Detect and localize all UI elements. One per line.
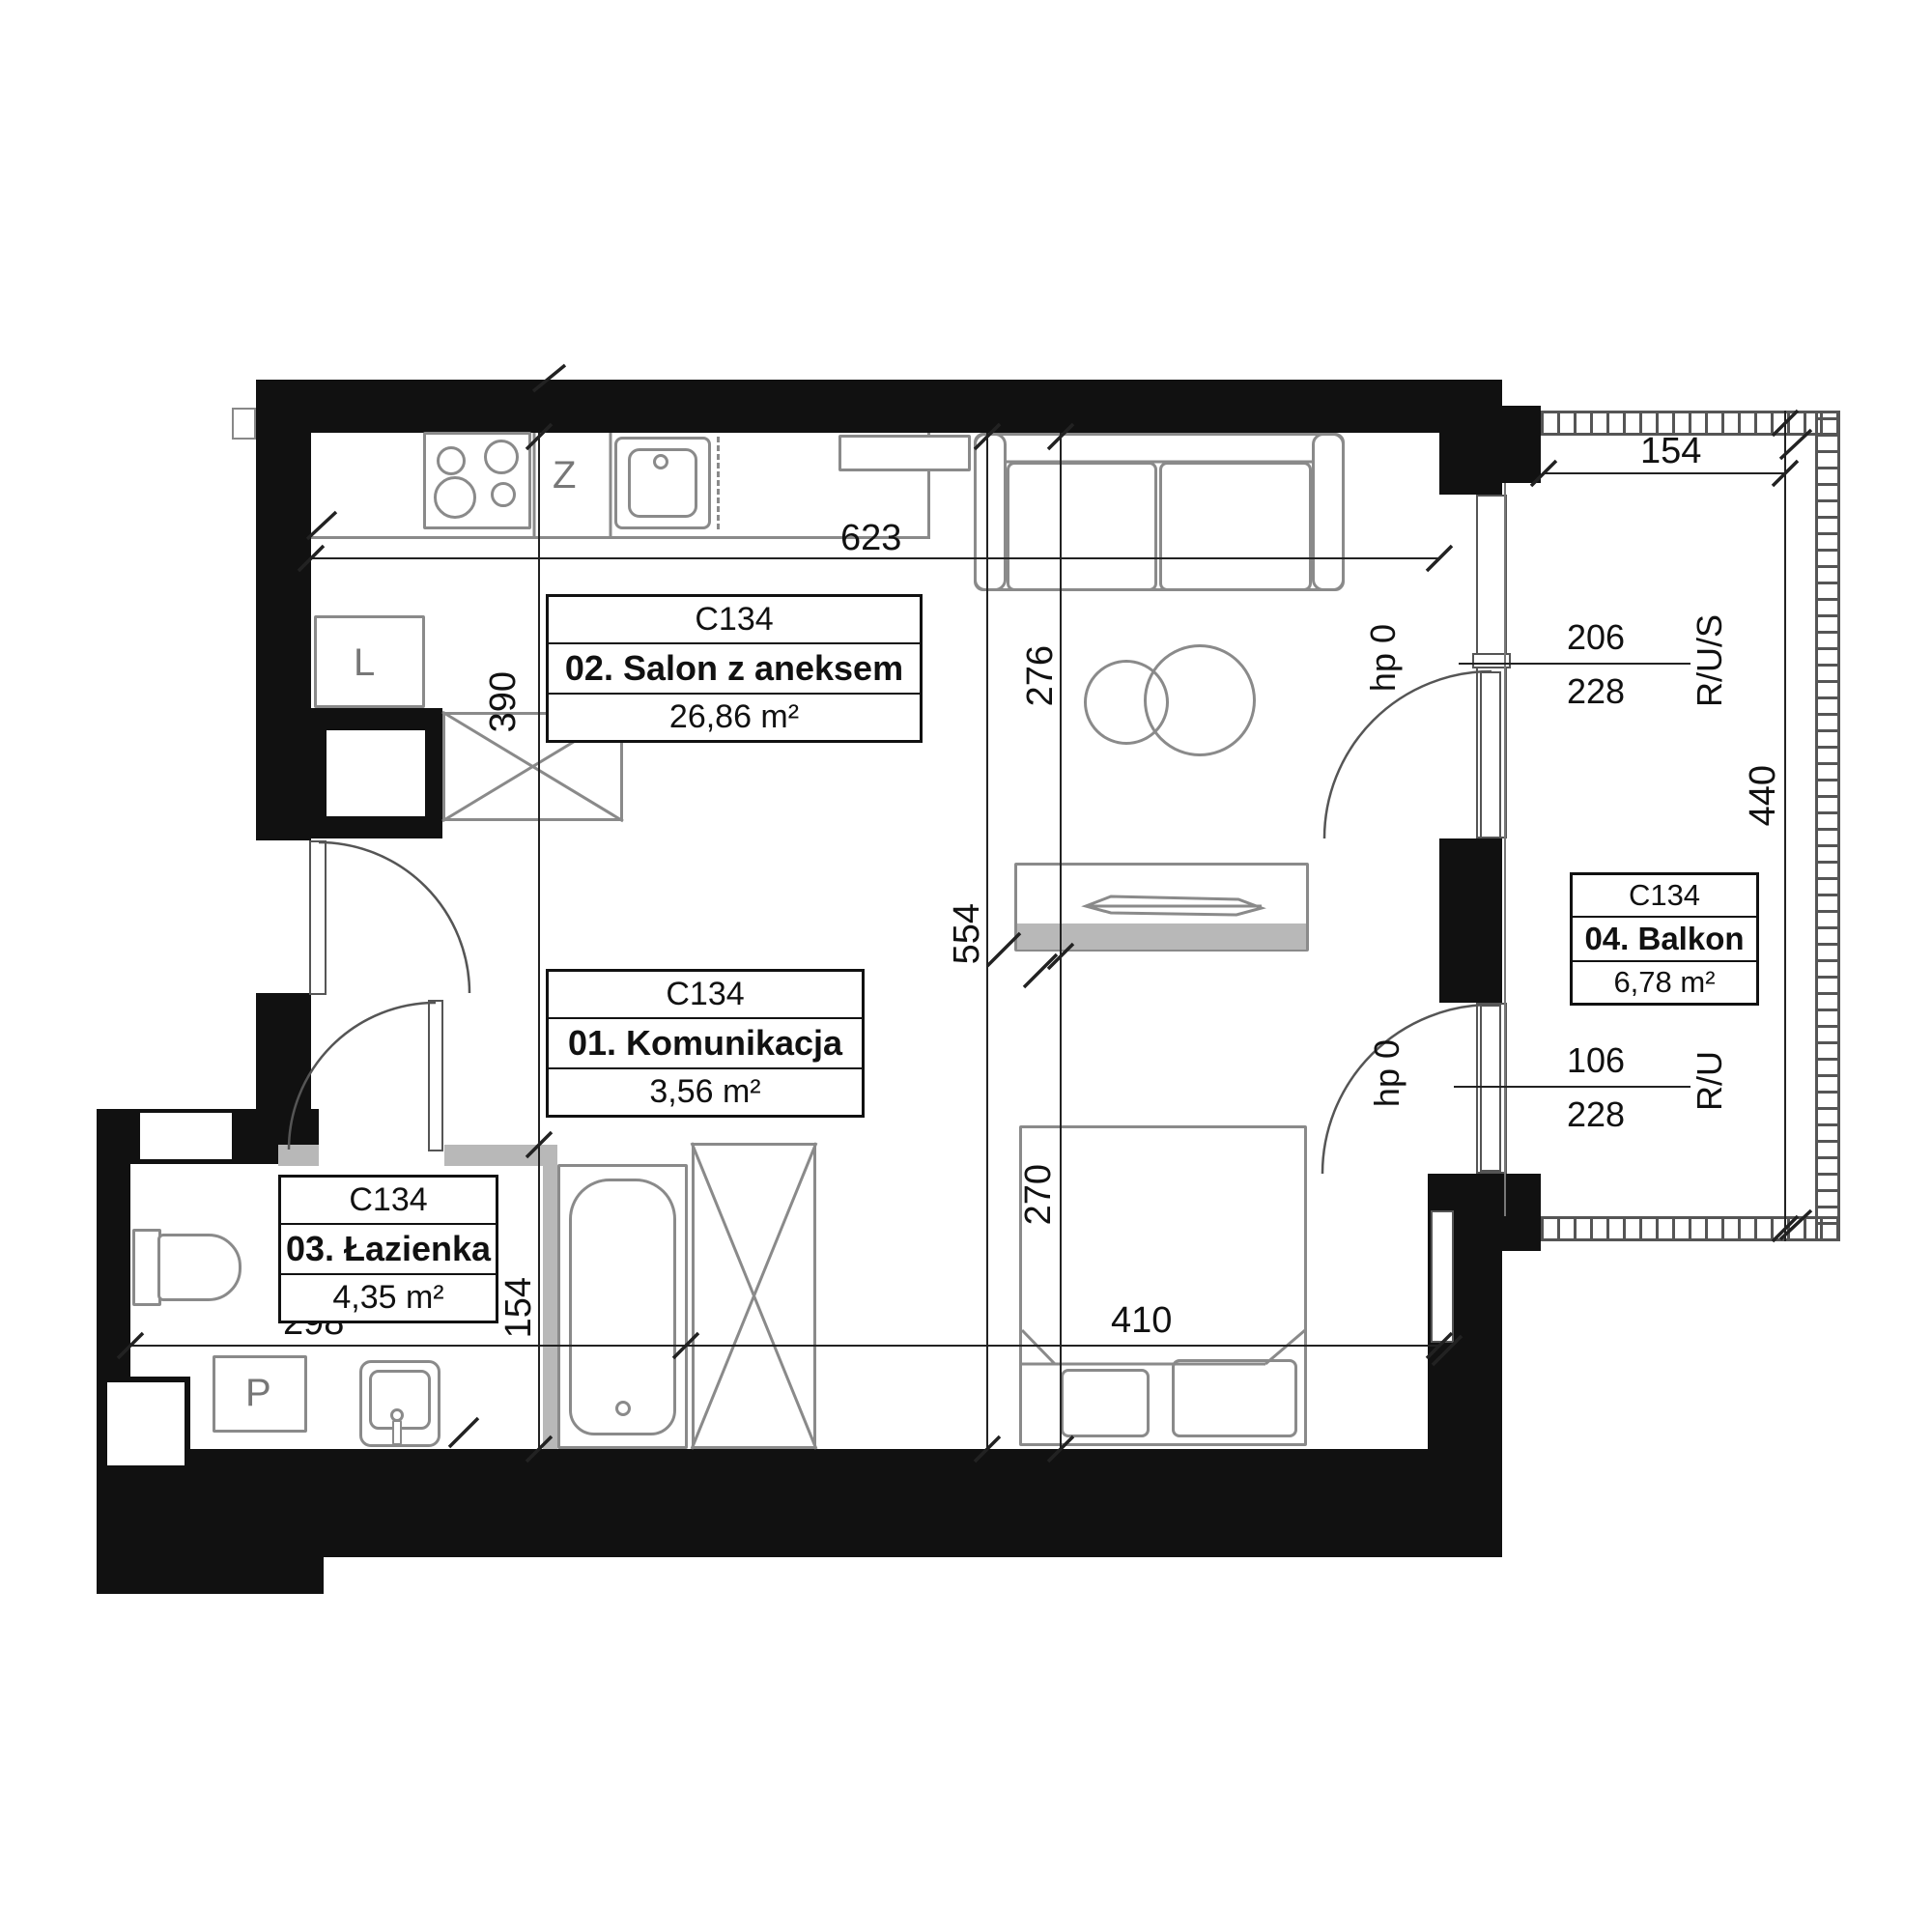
room-name: 04. Balkon — [1573, 918, 1756, 962]
room-area: 4,35 m² — [281, 1275, 496, 1321]
room-name: 02. Salon z aneksem — [549, 644, 920, 695]
dim-bed-zone-width: 410 — [1111, 1302, 1172, 1339]
upper-window-width: 206 — [1567, 620, 1625, 655]
room-label-komunikacja: C134 01. Komunikacja 3,56 m² — [546, 969, 865, 1118]
floor-plan-canvas: 623 390 276 554 270 410 298 154 154 440 … — [0, 0, 1932, 1932]
dishwasher-label: Z — [553, 456, 576, 495]
lower-window-width: 106 — [1567, 1043, 1625, 1078]
dim-salon-upper: 276 — [1022, 645, 1059, 706]
room-area: 26,86 m² — [549, 695, 920, 740]
dim-bathtub-zone: 154 — [500, 1277, 537, 1338]
dim-kitchen-depth: 390 — [485, 671, 522, 732]
lower-window-parapet: hp 0 — [1370, 1039, 1405, 1107]
room-label-salon: C134 02. Salon z aneksem 26,86 m² — [546, 594, 923, 743]
room-code: C134 — [549, 597, 920, 644]
bathroom-door-arc — [289, 1003, 436, 1150]
door-swing-arcs — [289, 671, 1492, 1174]
upper-window-height: 228 — [1567, 674, 1625, 709]
upper-window-parapet: hp 0 — [1366, 624, 1401, 692]
lower-window-height: 228 — [1567, 1097, 1625, 1132]
fridge-label: L — [354, 643, 375, 682]
dim-balcony-depth: 440 — [1745, 765, 1781, 826]
lower-balcony-door-arc — [1322, 1005, 1492, 1174]
dim-balcony-top-width: 154 — [1640, 433, 1701, 469]
entrance-door-arc — [319, 842, 469, 993]
upper-balcony-door-arc — [1324, 671, 1492, 838]
dim-salon-height: 554 — [949, 903, 985, 964]
room-name: 03. Łazienka — [281, 1225, 496, 1275]
room-code: C134 — [549, 972, 862, 1019]
room-area: 6,78 m² — [1573, 962, 1756, 1003]
room-area: 3,56 m² — [549, 1069, 862, 1115]
lower-window-type: R/U — [1692, 1051, 1727, 1111]
washing-machine-label: P — [245, 1374, 271, 1412]
wardrobe2-x-icon — [692, 1143, 816, 1449]
room-name: 01. Komunikacja — [549, 1019, 862, 1069]
room-code: C134 — [1573, 875, 1756, 918]
dim-bed-zone-depth: 270 — [1020, 1164, 1057, 1225]
room-label-balkon: C134 04. Balkon 6,78 m² — [1570, 872, 1759, 1006]
room-code: C134 — [281, 1178, 496, 1225]
dim-salon-width: 623 — [840, 520, 901, 556]
room-label-lazienka: C134 03. Łazienka 4,35 m² — [278, 1175, 498, 1323]
upper-window-type: R/U/S — [1692, 614, 1727, 707]
